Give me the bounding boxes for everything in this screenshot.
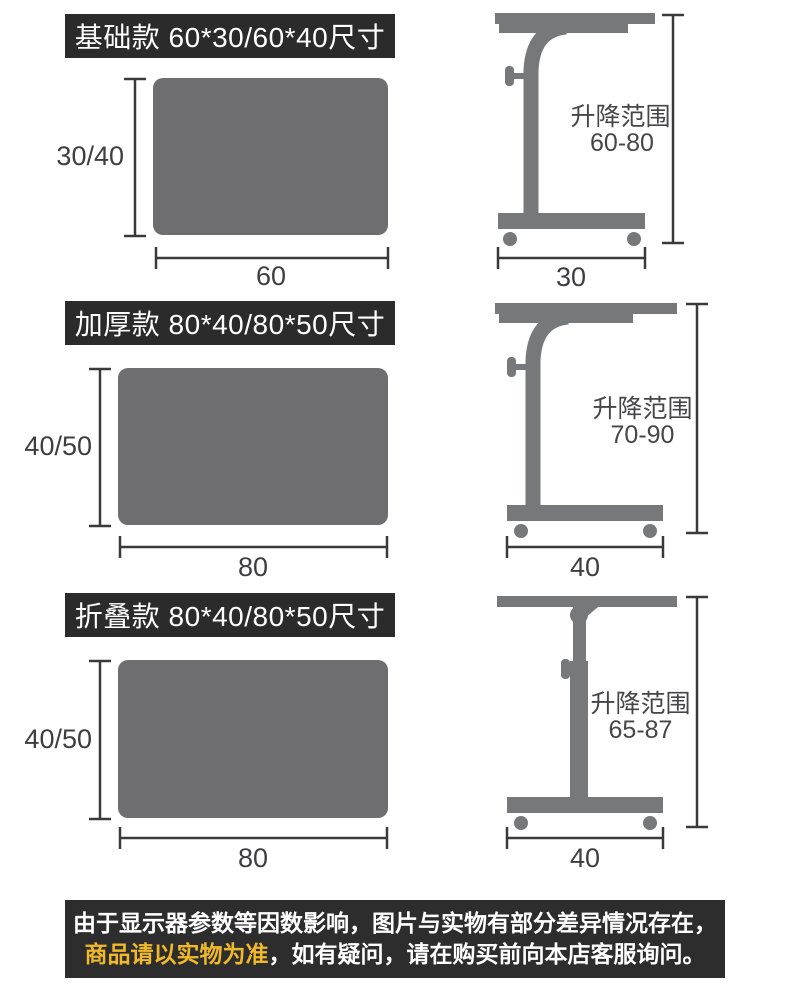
caster-wheel-right	[643, 524, 657, 538]
section-title-folding: 折叠款 80*40/80*50尺寸	[65, 593, 395, 637]
lift-range-value-thickened: 70-90	[565, 422, 720, 448]
caster-wheel-right	[627, 232, 641, 246]
tabletop-shape	[495, 13, 655, 24]
width-dim-label-basic: 60	[241, 261, 301, 291]
lift-range-title-thickened: 升降范围	[565, 396, 720, 422]
width-dim-label-thickened: 80	[223, 552, 283, 582]
caster-wheel-left	[514, 816, 528, 830]
adjust-knob-stem	[514, 364, 528, 370]
width-dim-label-folding: 80	[223, 843, 283, 873]
tabletop-shape	[497, 596, 677, 607]
caster-wheel-left	[514, 524, 528, 538]
upper-pole	[573, 607, 586, 664]
tabletop-panel-folding	[118, 660, 388, 818]
top-view-folding	[89, 660, 388, 849]
product-size-infographic: 基础款 60*30/60*40尺寸 加厚款 80*40/80*50尺寸 折叠款 …	[0, 0, 790, 1000]
support-column	[533, 317, 568, 512]
base-bar	[498, 213, 645, 229]
tabletop-panel-basic	[153, 78, 388, 235]
section-title-basic: 基础款 60*30/60*40尺寸	[65, 14, 395, 58]
top-view-thickened	[89, 368, 388, 558]
lift-range-title-basic: 升降范围	[543, 104, 698, 130]
lift-range-value-basic: 60-80	[543, 130, 701, 156]
lift-range-title-folding: 升降范围	[563, 691, 718, 717]
lift-range-value-folding: 65-87	[563, 717, 718, 743]
footer-line1: 由于显示器参数等因数影响，图片与实物有部分差异情况存在，	[73, 908, 717, 939]
caster-wheel-left	[503, 232, 517, 246]
base-width-label-basic: 30	[541, 262, 601, 292]
base-bar	[507, 505, 663, 521]
caster-wheel-right	[643, 816, 657, 830]
footer-disclaimer: 由于显示器参数等因数影响，图片与实物有部分差异情况存在， 商品请以实物为准，如有…	[65, 900, 725, 978]
base-width-label-thickened: 40	[555, 552, 615, 582]
height-dim-label-folding: 40/50	[8, 724, 92, 754]
height-dim-label-basic: 30/40	[38, 141, 124, 171]
tabletop-shape	[495, 303, 677, 314]
footer-highlight: 商品请以实物为准	[85, 941, 269, 967]
height-dim-label-thickened: 40/50	[8, 431, 92, 461]
footer-line2-rest: ，如有疑问，请在购买前向本店客服询问。	[269, 941, 706, 967]
tabletop-panel-thickened	[118, 368, 388, 525]
adjust-knob-stem	[512, 73, 526, 79]
top-view-basic	[124, 78, 388, 269]
base-bar	[507, 797, 663, 813]
footer-line2: 商品请以实物为准，如有疑问，请在购买前向本店客服询问。	[85, 939, 706, 970]
section-title-thickened: 加厚款 80*40/80*50尺寸	[65, 301, 395, 345]
base-width-label-folding: 40	[555, 843, 615, 873]
